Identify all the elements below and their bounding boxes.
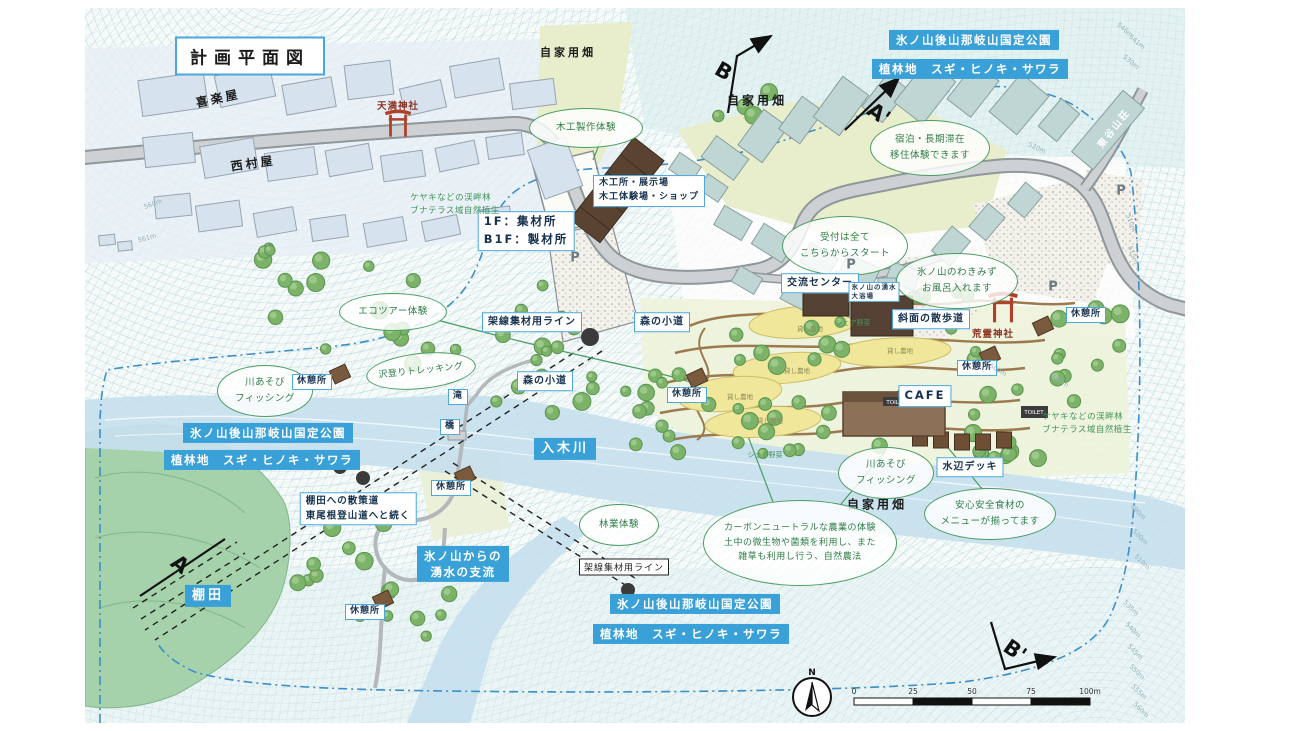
keyaki-note-2: ケヤキなどの渓畔林 ブナテラス域自然植生 [1042,411,1132,437]
contour-elevation-label: 560m [1132,701,1151,720]
kirakuya-label: 喜楽屋 [194,85,242,111]
ecotour-bubble: エコツアー体験 [339,293,447,331]
park-banner-bottom: 氷ノ山後山那岐山国定公園 [610,594,780,614]
site-plan-map: TOILET TOILET A A' B B' N [85,8,1185,723]
stay-bubble: 宿泊・長期滞在 移住体験できます [870,120,990,176]
contour-elevation-label: 545m [1126,643,1145,662]
woodshop-box: 木工所・展示場 木工体験場・ショップ [593,175,705,207]
hot-spring-box: 氷ノ山の湧水 大浴場 [849,282,900,302]
bath-bubble: 氷ノ山のわきみず お風呂入れます [896,253,1018,309]
parking-mark: P [846,258,856,273]
waterfall-box: 滝 [448,389,468,405]
plantation-banner-bottom: 植林地 スギ・ヒノキ・サワラ [593,624,789,644]
contour-elevation-label: 490m [1129,503,1148,522]
home-garden-label-1: 自家用畑 [540,44,596,60]
home-garden-label-2: 自家用畑 [727,92,787,109]
contour-elevation-label: 541m [1127,33,1147,51]
rental-field-label: 貸し農地 [887,345,913,355]
contour-elevation-label: 510m [1124,213,1138,233]
higashidani-lodge-label: 東谷山荘 [1093,106,1132,151]
contour-elevation-label: 515m [1126,245,1140,265]
arei-shrine-label: 荒霊神社 [972,326,1014,340]
exchange-center-box: 交流センター [781,273,859,293]
cable-line-box-1: 架線集材用ライン [482,312,582,332]
parking-mark: P [1048,280,1058,295]
site-plan-page: TOILET TOILET A A' B B' N [0,0,1300,731]
tenma-shrine-label: 天満神社 [377,98,419,112]
river-play-bubble-1: 川あそび フィッシング [217,365,313,417]
rental-field-label: 貸し農地 [784,365,810,375]
contour-elevation-label: 535m [1122,599,1141,618]
contour-elevation-label: 490m [1050,373,1070,389]
parking-mark: P [570,251,580,266]
agriculture-bubble: カーボンニュートラルな農業の体験 土中の微生物や菌類を利用し、また 雑草も利用し… [703,500,897,586]
plantation-banner-left: 植林地 スギ・ヒノキ・サワラ [164,450,360,470]
menu-bubble: 安心安全食材の メニューが揃ってます [924,488,1056,540]
river-play-bubble-2: 川あそび フィッシング [838,447,934,499]
terrace-banner: 棚田 [185,585,231,607]
contour-elevation-label: 555m [1130,683,1149,702]
rental-field-label: 貸し農地 [757,415,783,425]
trekking-bubble: 沢登りトレッキング [364,347,477,394]
rest-area-box: 休憩所 [431,480,471,496]
cable-line-box-2: 架線集材用ライン [579,559,669,576]
river-name-banner: 入木川 [534,438,596,460]
park-banner-top: 氷ノ山後山那岐山国定公園 [889,30,1059,50]
rest-area-box: 休憩所 [667,387,707,403]
forestry-bubble: 林業体験 [579,504,659,546]
plantation-banner-top: 植林地 スギ・ヒノキ・サワラ [872,59,1068,79]
share-field-label: シェア野菜 [836,318,871,328]
woodcraft-bubble: 木工製作体験 [529,108,643,148]
rest-area-box: 休憩所 [292,374,332,390]
contour-elevation-label: 560m [143,197,163,211]
share-field-label: シェア野菜 [748,450,783,460]
park-banner-left: 氷ノ山後山那岐山国定公園 [183,423,353,443]
slope-walk-box: 斜面の散歩道 [892,309,970,329]
rental-field-label: 貸し農地 [797,323,823,333]
map-labels: 計画平面図 喜楽屋 西村屋 天満神社 荒霊神社 東谷山荘 自家用畑 自家用畑 自… [85,8,1185,723]
rest-area-box: 休憩所 [1066,307,1106,323]
cafe-box: CAFE [898,385,951,407]
bridge-box: 橋 [440,419,460,435]
tributary-banner: 氷ノ山からの 湧水の支流 [417,546,509,582]
forest-path-box-1: 森の小道 [634,312,690,332]
contour-elevation-label: 550m [1128,663,1147,682]
terrace-walk-box: 棚田への散策道 東尾根登山道へと続く [300,492,417,525]
contour-elevation-label: 540m [1124,621,1143,640]
nishimuraya-label: 西村屋 [230,151,277,174]
contour-elevation-label: 520m [1027,140,1047,155]
parking-mark: P [1116,184,1126,199]
waterside-deck-box: 水辺デッキ [937,457,1004,477]
rest-area-box: 休憩所 [345,604,385,620]
contour-elevation-label: 561m [137,232,157,245]
contour-elevation-label: 500m [1131,528,1150,547]
contour-elevation-label: 510m [1133,553,1152,572]
keyaki-note-1: ケヤキなどの渓畔林 ブナテラス域自然植生 [410,192,500,218]
forest-path-box-2: 森の小道 [517,371,573,391]
page-title: 計画平面図 [175,37,325,76]
reception-bubble: 受付は全て こちらからスタート [782,216,908,276]
rental-field-label: 貸し農地 [727,391,753,401]
contour-elevation-label: 530m [1121,53,1141,71]
